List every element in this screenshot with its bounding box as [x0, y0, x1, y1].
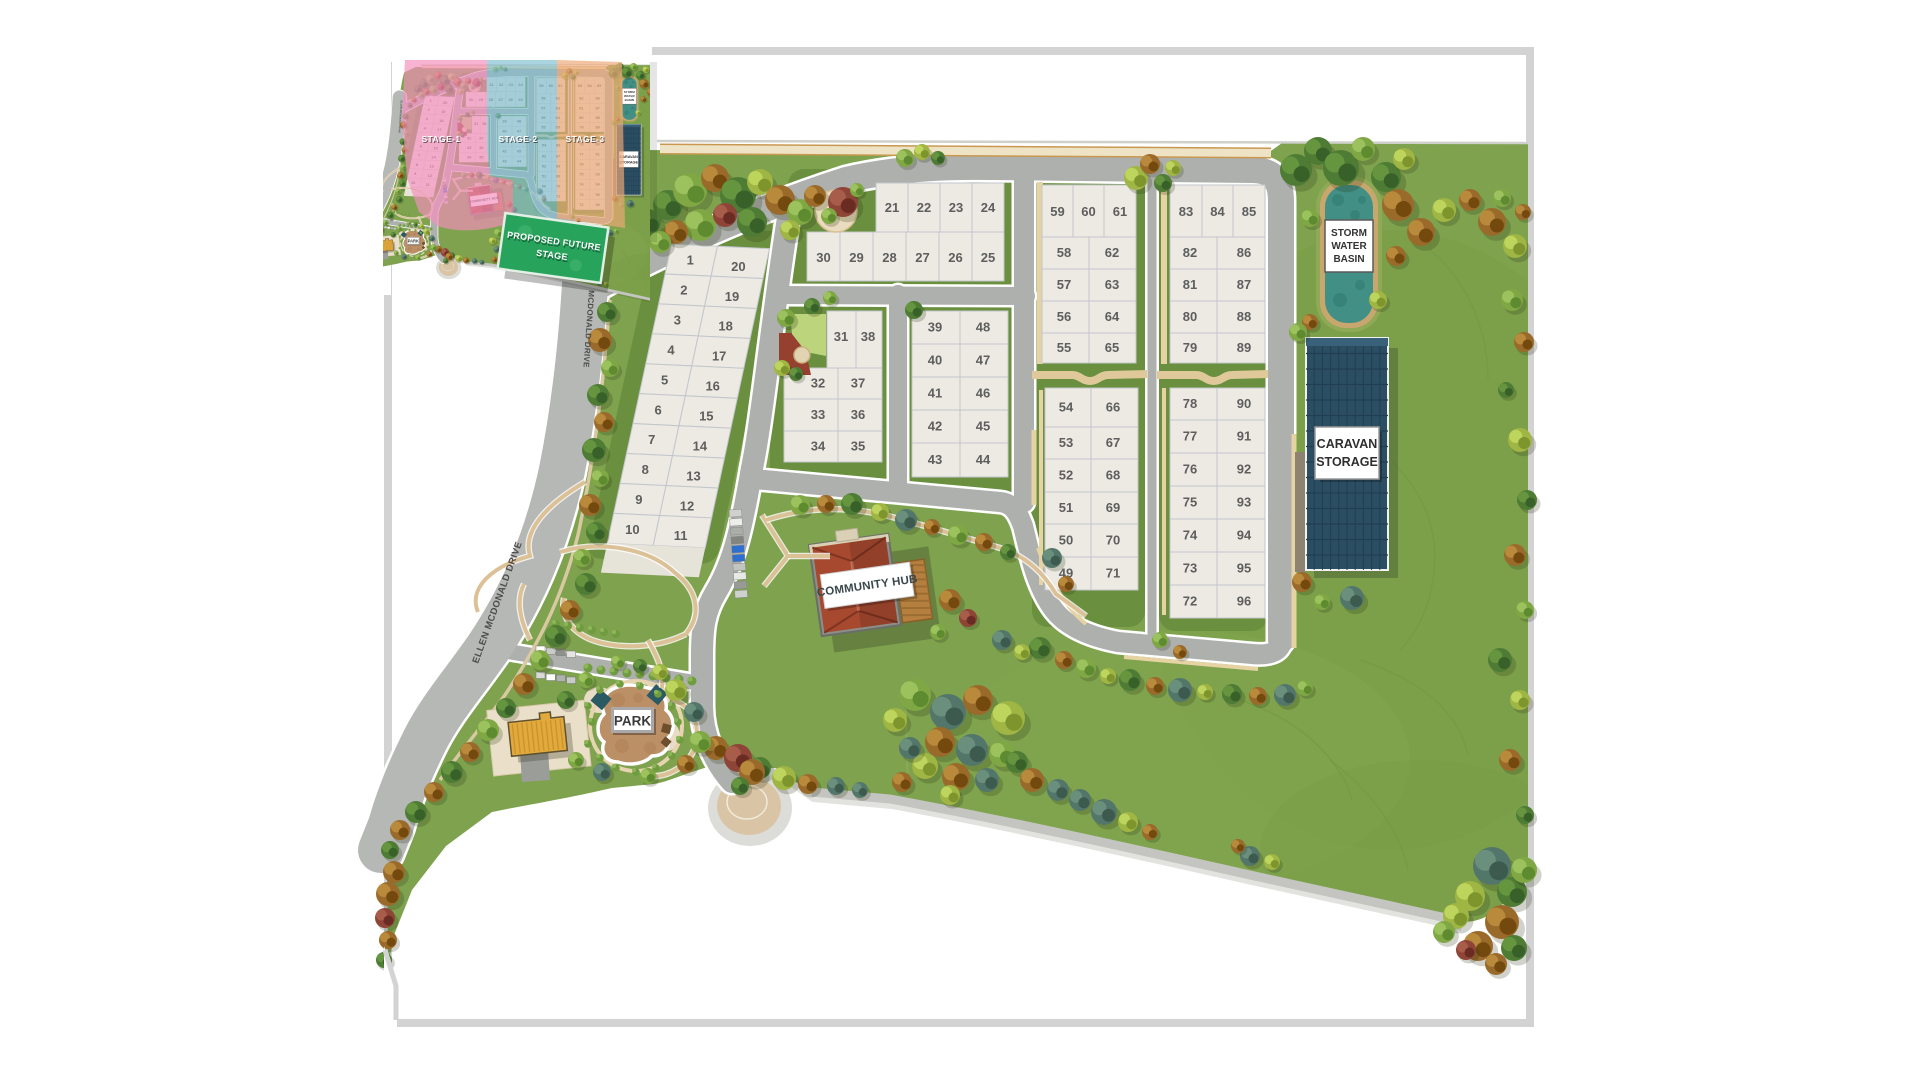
svg-text:45: 45 [976, 419, 990, 434]
svg-text:77: 77 [1183, 429, 1197, 444]
svg-text:22: 22 [917, 200, 931, 215]
svg-text:STORM: STORM [1331, 228, 1367, 239]
svg-text:92: 92 [1237, 462, 1251, 477]
svg-text:88: 88 [1237, 309, 1251, 324]
svg-text:37: 37 [851, 376, 865, 391]
svg-text:96: 96 [1237, 594, 1251, 609]
svg-text:80: 80 [1183, 309, 1197, 324]
svg-text:65: 65 [1105, 340, 1119, 355]
svg-text:33: 33 [811, 407, 825, 422]
svg-text:83: 83 [1179, 204, 1193, 219]
svg-text:5: 5 [661, 372, 668, 387]
svg-text:26: 26 [948, 250, 962, 265]
svg-text:71: 71 [1106, 566, 1120, 581]
svg-text:19: 19 [725, 289, 739, 304]
svg-text:57: 57 [1057, 277, 1071, 292]
svg-text:52: 52 [1059, 468, 1073, 483]
svg-text:75: 75 [1183, 495, 1197, 510]
svg-text:STORAGE: STORAGE [1316, 455, 1378, 469]
svg-text:20: 20 [731, 259, 745, 274]
svg-text:50: 50 [1059, 533, 1073, 548]
svg-text:73: 73 [1183, 561, 1197, 576]
svg-text:40: 40 [928, 353, 942, 368]
svg-text:56: 56 [1057, 309, 1071, 324]
svg-text:11: 11 [674, 528, 688, 543]
svg-text:STAGE-2: STAGE-2 [498, 134, 537, 144]
svg-text:54: 54 [1059, 400, 1074, 415]
svg-text:38: 38 [861, 329, 875, 344]
svg-text:93: 93 [1237, 495, 1251, 510]
svg-text:81: 81 [1183, 277, 1197, 292]
svg-text:70: 70 [1106, 533, 1120, 548]
svg-text:89: 89 [1237, 340, 1251, 355]
svg-text:3: 3 [674, 313, 681, 328]
svg-text:36: 36 [851, 407, 865, 422]
svg-text:30: 30 [816, 250, 830, 265]
svg-text:67: 67 [1106, 435, 1120, 450]
svg-text:PARK: PARK [614, 714, 652, 729]
svg-text:12: 12 [680, 498, 694, 513]
svg-text:23: 23 [949, 200, 963, 215]
svg-text:87: 87 [1237, 277, 1251, 292]
svg-text:42: 42 [928, 419, 942, 434]
svg-text:14: 14 [693, 438, 708, 453]
svg-text:68: 68 [1106, 468, 1120, 483]
svg-text:90: 90 [1237, 396, 1251, 411]
svg-text:WATER: WATER [1331, 241, 1367, 252]
svg-text:62: 62 [1105, 245, 1119, 260]
svg-text:34: 34 [811, 439, 826, 454]
svg-text:6: 6 [654, 402, 661, 417]
svg-text:85: 85 [1242, 204, 1256, 219]
svg-text:58: 58 [1057, 245, 1071, 260]
svg-text:18: 18 [718, 319, 732, 334]
svg-text:15: 15 [699, 409, 713, 424]
svg-text:27: 27 [915, 250, 929, 265]
svg-text:66: 66 [1106, 400, 1120, 415]
svg-text:39: 39 [928, 320, 942, 335]
svg-text:41: 41 [928, 386, 942, 401]
svg-text:72: 72 [1183, 594, 1197, 609]
svg-text:48: 48 [976, 320, 990, 335]
svg-text:47: 47 [976, 353, 990, 368]
svg-text:82: 82 [1183, 245, 1197, 260]
svg-text:95: 95 [1237, 561, 1251, 576]
svg-text:44: 44 [976, 452, 991, 467]
svg-text:59: 59 [1050, 204, 1064, 219]
svg-text:63: 63 [1105, 277, 1119, 292]
svg-text:94: 94 [1237, 528, 1252, 543]
svg-text:35: 35 [851, 439, 865, 454]
svg-text:43: 43 [928, 452, 942, 467]
svg-text:1: 1 [687, 253, 694, 268]
svg-text:29: 29 [849, 250, 863, 265]
svg-text:84: 84 [1210, 204, 1225, 219]
svg-text:21: 21 [885, 200, 899, 215]
svg-text:28: 28 [882, 250, 896, 265]
svg-text:46: 46 [976, 386, 990, 401]
svg-text:25: 25 [981, 250, 995, 265]
svg-text:16: 16 [705, 379, 719, 394]
svg-text:4: 4 [667, 342, 675, 357]
svg-text:17: 17 [712, 349, 726, 364]
svg-text:64: 64 [1105, 309, 1120, 324]
svg-text:69: 69 [1106, 500, 1120, 515]
svg-text:51: 51 [1059, 500, 1073, 515]
svg-text:79: 79 [1183, 340, 1197, 355]
svg-text:60: 60 [1081, 204, 1095, 219]
svg-text:76: 76 [1183, 462, 1197, 477]
svg-text:8: 8 [642, 462, 649, 477]
svg-text:STAGE-3: STAGE-3 [565, 134, 604, 144]
svg-text:BASIN: BASIN [1333, 254, 1364, 265]
svg-text:2: 2 [680, 283, 687, 298]
svg-text:91: 91 [1237, 429, 1251, 444]
svg-text:24: 24 [981, 200, 996, 215]
svg-text:13: 13 [686, 468, 700, 483]
svg-text:9: 9 [635, 492, 642, 507]
svg-text:CARAVAN: CARAVAN [1317, 437, 1378, 451]
svg-text:55: 55 [1057, 340, 1071, 355]
svg-text:32: 32 [811, 376, 825, 391]
svg-text:78: 78 [1183, 396, 1197, 411]
svg-text:53: 53 [1059, 435, 1073, 450]
svg-text:74: 74 [1183, 528, 1198, 543]
svg-text:10: 10 [625, 522, 639, 537]
svg-text:31: 31 [834, 329, 848, 344]
svg-text:86: 86 [1237, 245, 1251, 260]
svg-text:STAGE-1: STAGE-1 [421, 134, 460, 144]
svg-text:7: 7 [648, 432, 655, 447]
svg-text:61: 61 [1113, 204, 1127, 219]
